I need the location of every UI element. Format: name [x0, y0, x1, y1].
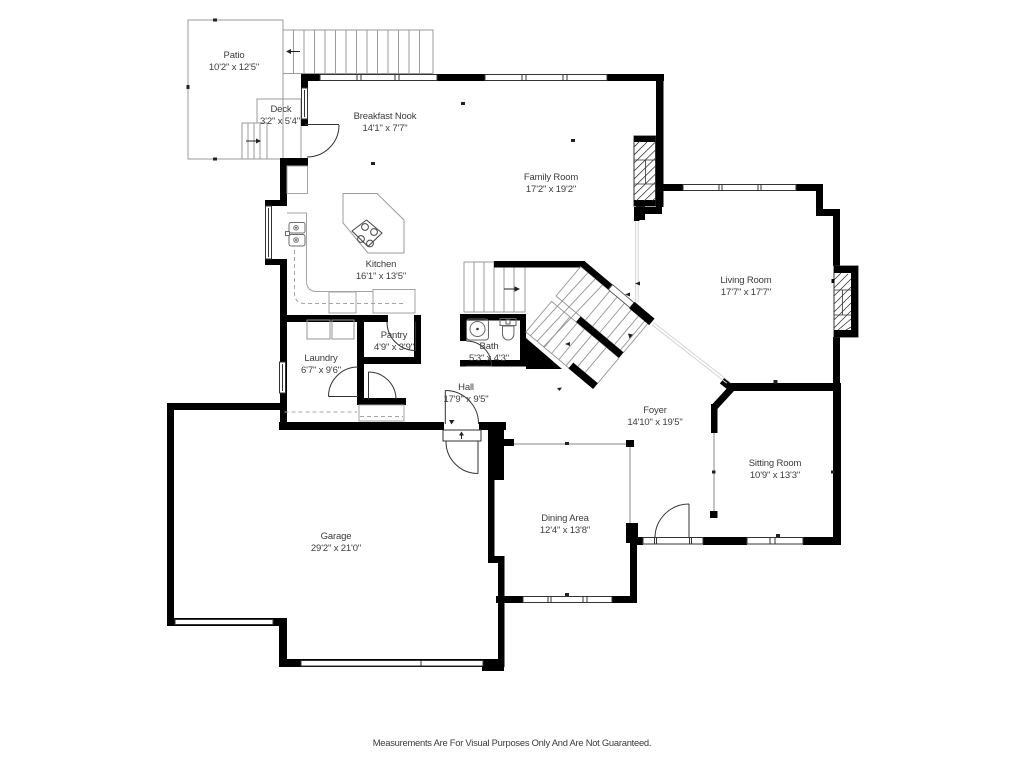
svg-text:Pantry: Pantry	[381, 330, 408, 341]
svg-text:Family Room: Family Room	[524, 172, 579, 183]
svg-text:3'2" x 5'4": 3'2" x 5'4"	[260, 116, 300, 127]
svg-text:Living Room: Living Room	[720, 275, 771, 286]
svg-text:5'3" x 4'3": 5'3" x 4'3"	[469, 353, 509, 364]
svg-text:Garage: Garage	[321, 531, 352, 542]
svg-text:12'4" x 13'8": 12'4" x 13'8"	[540, 525, 590, 536]
svg-text:14'1" x 7'7": 14'1" x 7'7"	[362, 123, 407, 134]
svg-text:6'7" x 9'6": 6'7" x 9'6"	[301, 365, 341, 376]
svg-text:Laundry: Laundry	[304, 353, 338, 364]
svg-text:16'1" x 13'5": 16'1" x 13'5"	[356, 271, 406, 282]
svg-text:Deck: Deck	[270, 104, 291, 115]
svg-text:10'2" x 12'5": 10'2" x 12'5"	[209, 62, 259, 73]
svg-text:17'2" x 19'2": 17'2" x 19'2"	[526, 184, 576, 195]
svg-text:Dining Area: Dining Area	[541, 513, 589, 524]
svg-text:Hall: Hall	[458, 382, 474, 393]
svg-text:10'9" x 13'3": 10'9" x 13'3"	[750, 470, 800, 481]
svg-text:Measurements Are For Visual Pu: Measurements Are For Visual Purposes Onl…	[373, 737, 652, 748]
svg-text:Sitting Room: Sitting Room	[749, 458, 802, 469]
svg-text:4'9" x 3'9": 4'9" x 3'9"	[374, 342, 414, 353]
svg-text:Patio: Patio	[224, 50, 245, 61]
svg-text:14'10" x 19'5": 14'10" x 19'5"	[627, 417, 682, 428]
svg-text:Kitchen: Kitchen	[366, 259, 397, 270]
svg-text:Bath: Bath	[480, 341, 499, 352]
svg-text:29'2" x 21'0": 29'2" x 21'0"	[311, 543, 361, 554]
svg-text:Breakfast Nook: Breakfast Nook	[354, 111, 417, 122]
svg-text:Foyer: Foyer	[643, 405, 667, 416]
svg-text:17'7" x 17'7": 17'7" x 17'7"	[721, 287, 771, 298]
svg-text:17'9" x 9'5": 17'9" x 9'5"	[443, 394, 488, 405]
